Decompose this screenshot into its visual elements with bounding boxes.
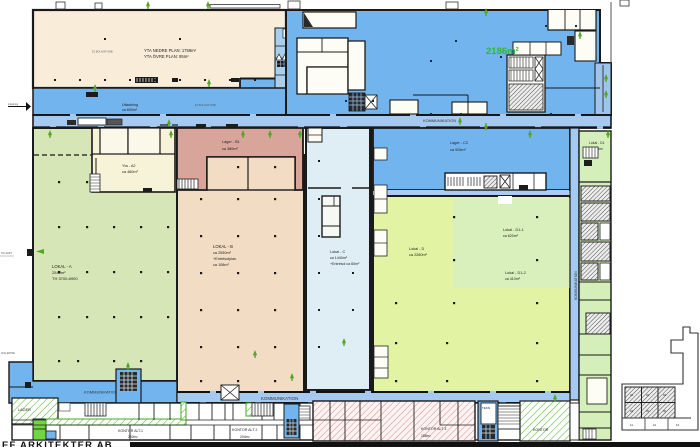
- svg-text:+Entrésolplan: +Entrésolplan: [213, 257, 236, 261]
- svg-text:ca 380m²: ca 380m²: [222, 147, 239, 151]
- svg-text:KOMMUNIKATION: KOMMUNIKATION: [423, 118, 456, 123]
- svg-text:TH 3700-6900: TH 3700-6900: [52, 276, 78, 281]
- svg-text:11: 11: [630, 423, 633, 427]
- svg-text:KONTOR ALT 3: KONTOR ALT 3: [421, 427, 446, 431]
- svg-text:Lokal - D: Lokal - D: [409, 247, 424, 251]
- svg-text:+Entrésol ca 60m²: +Entrésol ca 60m²: [330, 262, 360, 266]
- svg-text:ca 108m²: ca 108m²: [213, 263, 230, 267]
- svg-text:EJ BOLAGR SNB: EJ BOLAGR SNB: [195, 103, 216, 107]
- svg-text:KONTOR ALT 2: KONTOR ALT 2: [232, 428, 257, 432]
- svg-text:Lager - C2: Lager - C2: [450, 141, 468, 145]
- svg-text:KOMMUNIKATION: KOMMUNIKATION: [574, 271, 578, 300]
- svg-text:TEKN: TEKN: [482, 406, 490, 410]
- svg-text:204m²: 204m²: [240, 435, 250, 439]
- svg-text:Yta - A2: Yta - A2: [122, 164, 136, 168]
- svg-text:04: 04: [630, 409, 634, 413]
- svg-text:01: 01: [630, 393, 634, 397]
- svg-text:ca 410m²: ca 410m²: [505, 277, 521, 281]
- svg-text:KOMMUNIKATION: KOMMUNIKATION: [84, 390, 118, 395]
- svg-text:Lokal - C: Lokal - C: [330, 250, 345, 254]
- svg-text:ca 620m²: ca 620m²: [503, 234, 519, 238]
- svg-text:LAGER: LAGER: [18, 408, 31, 412]
- svg-text:ca 600m²: ca 600m²: [122, 108, 138, 112]
- svg-text:YTA ÖVRE PLAN: 95m²: YTA ÖVRE PLAN: 95m²: [144, 54, 189, 59]
- svg-text:2186m²: 2186m²: [486, 46, 519, 57]
- svg-text:260m²: 260m²: [128, 435, 138, 439]
- svg-text:ca 925m²: ca 925m²: [450, 148, 467, 152]
- svg-text:inlastning: inlastning: [8, 103, 19, 106]
- svg-text:LOKAL - A: LOKAL - A: [52, 264, 72, 269]
- svg-text:ca 2550m²: ca 2550m²: [213, 251, 232, 255]
- svg-text:Lokal - D1: Lokal - D1: [589, 141, 605, 145]
- svg-text:ca 460m²: ca 460m²: [122, 170, 139, 174]
- svg-text:Lokal - D1-1: Lokal - D1-1: [503, 228, 524, 232]
- svg-text:EF ARKITEKTER AB: EF ARKITEKTER AB: [2, 440, 113, 447]
- svg-text:ca 1440m²: ca 1440m²: [330, 256, 348, 260]
- svg-text:Lager - B1: Lager - B1: [222, 140, 240, 144]
- svg-text:ca 2280m²: ca 2280m²: [409, 253, 428, 257]
- svg-text:Lokal - D1-2: Lokal - D1-2: [505, 271, 526, 275]
- svg-text:06: 06: [663, 409, 667, 413]
- svg-text:EJ BOLAGR SNB: EJ BOLAGR SNB: [92, 50, 113, 54]
- svg-text:Utlastning: Utlastning: [122, 103, 138, 107]
- svg-text:13: 13: [676, 423, 680, 427]
- svg-text:YTA NEDRE PLAN: 1759m²: YTA NEDRE PLAN: 1759m²: [144, 48, 197, 53]
- svg-text:TILLFART: TILLFART: [1, 252, 12, 255]
- svg-text:KONTOR: KONTOR: [533, 428, 549, 432]
- svg-text:KOMMUNIKATION: KOMMUNIKATION: [261, 396, 298, 401]
- svg-text:LOKAL - B: LOKAL - B: [213, 244, 233, 249]
- svg-text:KONTOR ALT.1: KONTOR ALT.1: [118, 429, 143, 433]
- svg-text:05: 05: [646, 409, 650, 413]
- svg-text:188m²: 188m²: [421, 434, 431, 438]
- svg-text:ANG.ENTRE: ANG.ENTRE: [1, 352, 15, 355]
- svg-text:12: 12: [653, 423, 657, 427]
- svg-text:02: 02: [646, 393, 650, 397]
- svg-text:03: 03: [663, 393, 667, 397]
